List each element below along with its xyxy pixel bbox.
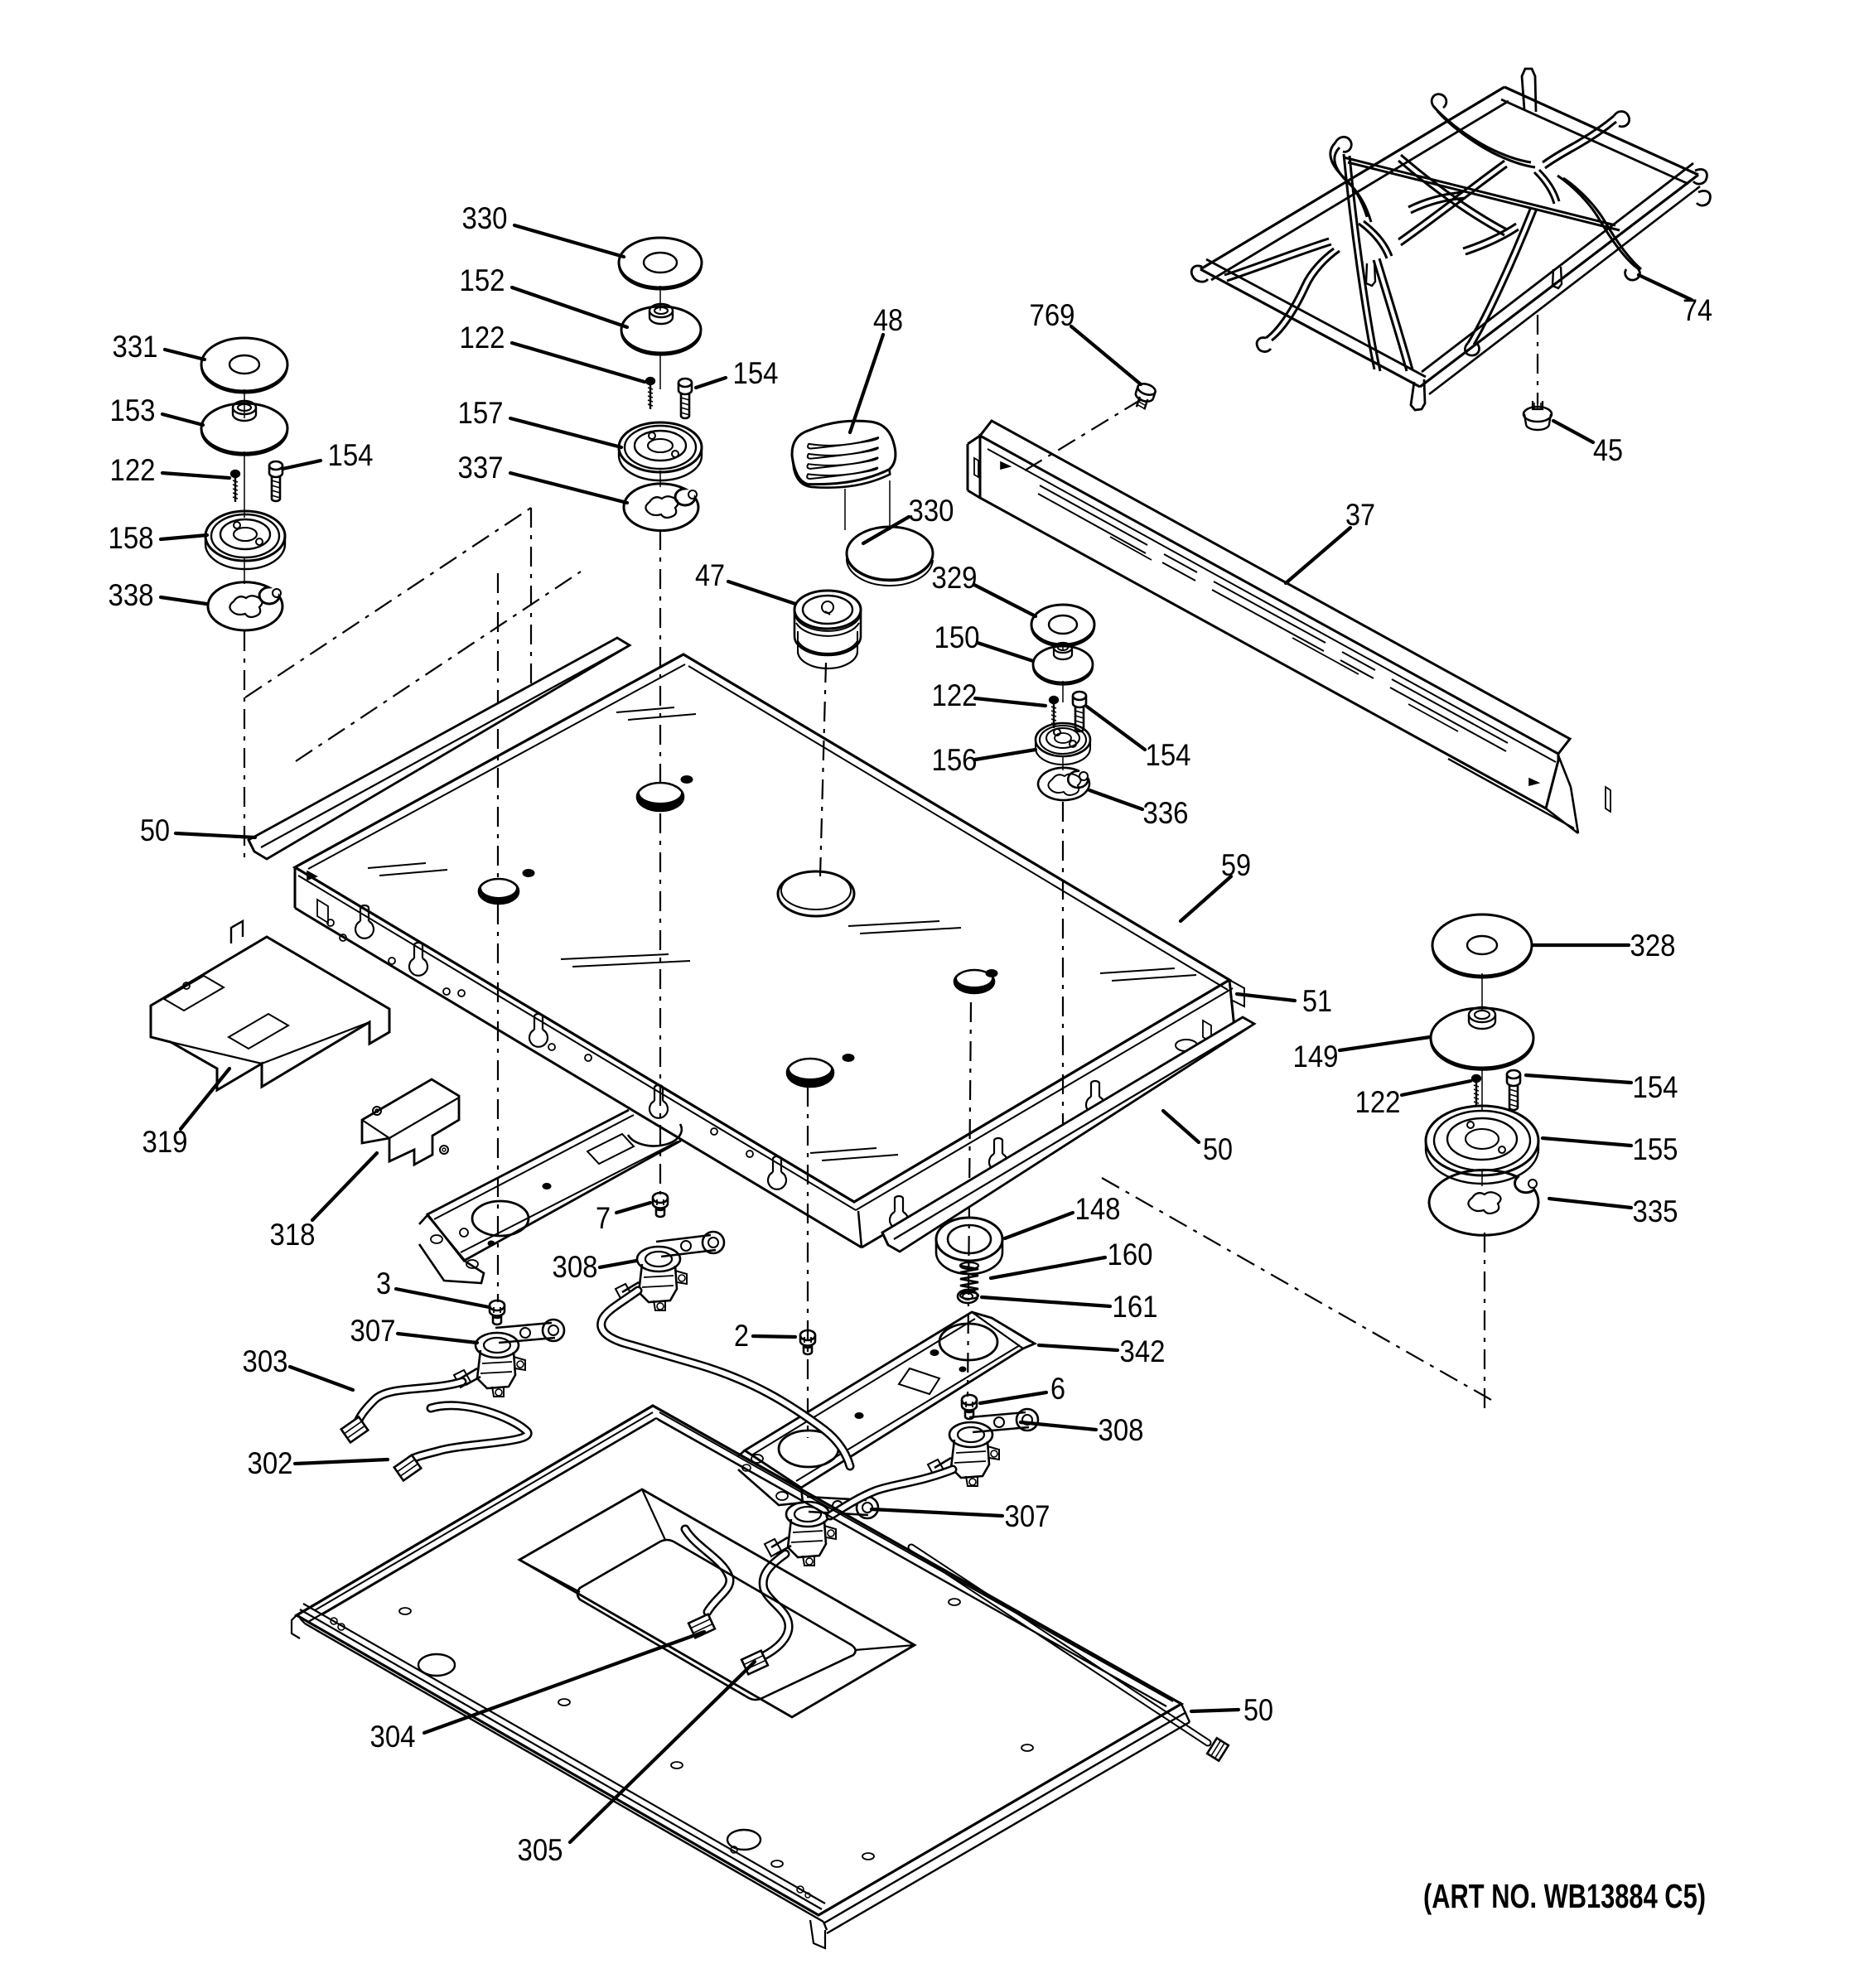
svg-text:2: 2 (734, 1319, 749, 1353)
svg-text:337: 337 (458, 451, 504, 485)
svg-text:307: 307 (1005, 1499, 1050, 1533)
svg-text:308: 308 (1099, 1413, 1144, 1447)
svg-text:330: 330 (462, 201, 508, 235)
svg-text:328: 328 (1630, 929, 1676, 963)
svg-text:330: 330 (909, 494, 954, 528)
svg-text:47: 47 (695, 558, 725, 592)
svg-text:150: 150 (934, 620, 980, 654)
svg-text:157: 157 (458, 396, 504, 430)
svg-text:152: 152 (460, 263, 505, 297)
svg-text:(ART NO. WB13884 C5): (ART NO. WB13884 C5) (1423, 1877, 1706, 1915)
svg-text:122: 122 (1355, 1085, 1401, 1119)
svg-text:155: 155 (1633, 1132, 1678, 1166)
svg-text:305: 305 (518, 1833, 563, 1867)
svg-text:122: 122 (932, 678, 978, 712)
svg-text:154: 154 (1633, 1070, 1678, 1104)
svg-text:50: 50 (1203, 1132, 1233, 1166)
svg-text:335: 335 (1633, 1194, 1678, 1228)
svg-text:304: 304 (370, 1720, 416, 1754)
svg-text:122: 122 (460, 321, 505, 355)
svg-text:329: 329 (932, 561, 978, 595)
svg-text:308: 308 (553, 1250, 598, 1284)
svg-text:6: 6 (1050, 1372, 1065, 1406)
svg-text:158: 158 (109, 521, 154, 555)
svg-text:156: 156 (932, 743, 978, 777)
svg-text:153: 153 (110, 393, 156, 427)
svg-text:154: 154 (328, 438, 374, 472)
svg-text:149: 149 (1293, 1040, 1339, 1074)
svg-text:122: 122 (110, 453, 156, 487)
svg-text:331: 331 (113, 330, 158, 364)
svg-text:336: 336 (1143, 796, 1189, 830)
svg-text:338: 338 (109, 578, 154, 612)
svg-text:50: 50 (140, 813, 170, 847)
svg-text:148: 148 (1075, 1192, 1121, 1226)
svg-text:59: 59 (1221, 848, 1251, 882)
svg-text:318: 318 (270, 1218, 316, 1252)
svg-text:7: 7 (596, 1201, 611, 1235)
svg-text:769: 769 (1030, 298, 1075, 332)
svg-text:50: 50 (1243, 1693, 1273, 1727)
svg-text:303: 303 (243, 1344, 288, 1378)
svg-text:154: 154 (733, 356, 779, 390)
svg-text:302: 302 (248, 1446, 293, 1480)
svg-text:3: 3 (376, 1267, 391, 1300)
svg-text:160: 160 (1108, 1238, 1153, 1271)
svg-text:307: 307 (350, 1314, 396, 1348)
svg-text:51: 51 (1302, 984, 1332, 1018)
svg-text:154: 154 (1146, 738, 1191, 772)
svg-text:45: 45 (1593, 433, 1623, 467)
svg-text:48: 48 (873, 303, 903, 337)
svg-text:342: 342 (1120, 1334, 1166, 1368)
svg-text:161: 161 (1113, 1290, 1158, 1324)
